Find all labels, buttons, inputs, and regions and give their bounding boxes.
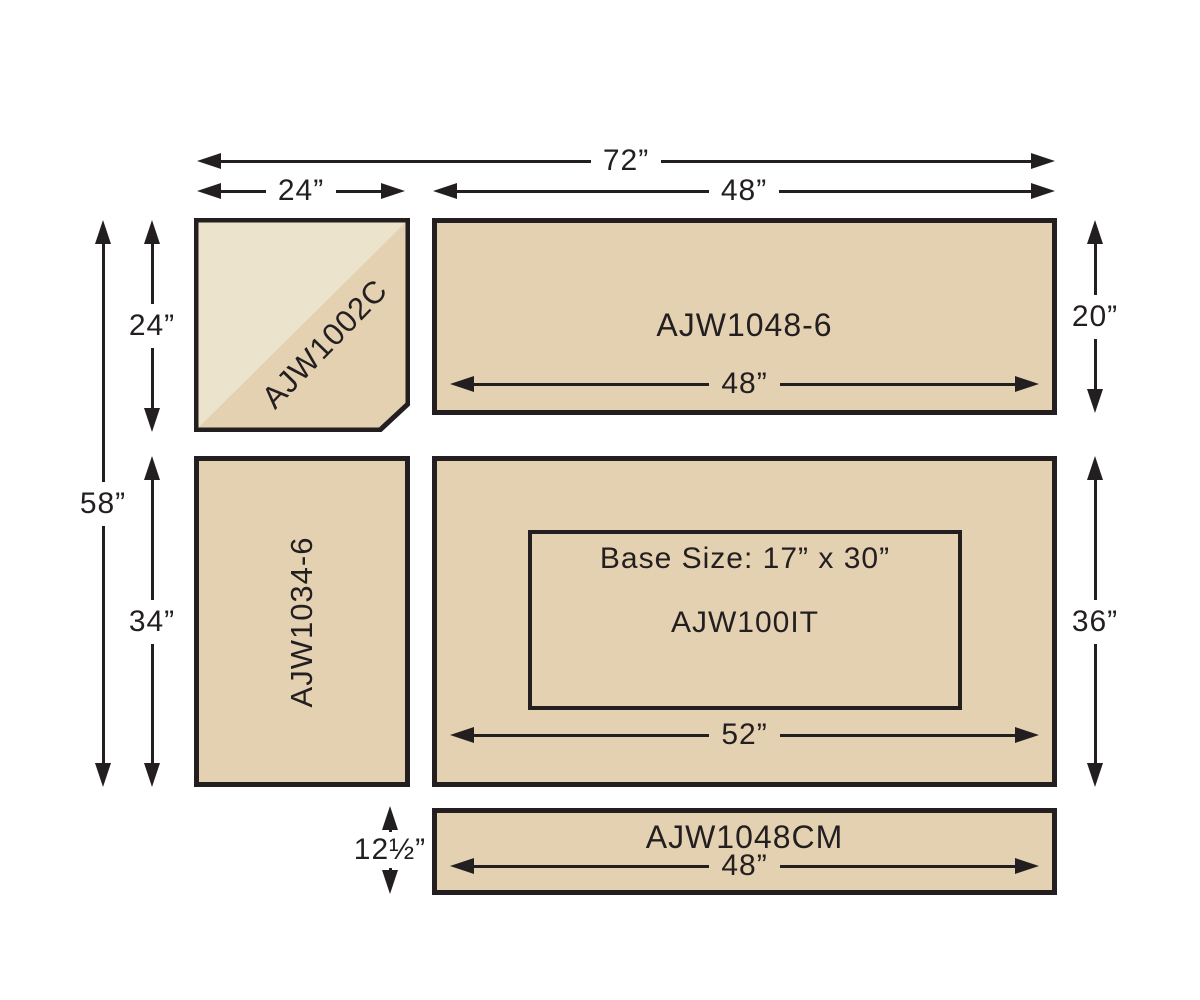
arrowhead-down-icon bbox=[382, 870, 398, 894]
arrowhead-right-icon bbox=[1015, 376, 1039, 392]
dim-left-piece-height: 34” bbox=[107, 456, 197, 787]
dim-overall-width-label: 72” bbox=[591, 145, 661, 177]
dim-line bbox=[1094, 644, 1097, 764]
dim-ajw1048-6-width: 48” bbox=[450, 368, 1039, 400]
dim-line bbox=[474, 865, 709, 868]
dim-ajw1048-6-width-label: 48” bbox=[709, 368, 779, 400]
arrowhead-left-icon bbox=[433, 183, 457, 199]
piece-ajw100it-base-outline: Base Size: 17” x 30” AJW100IT bbox=[528, 530, 962, 710]
arrowhead-left-icon bbox=[197, 183, 221, 199]
dim-right-width: 48” bbox=[433, 175, 1055, 207]
arrowhead-left-icon bbox=[450, 376, 474, 392]
piece-ajw1048cm: AJW1048CM 48” bbox=[432, 808, 1057, 895]
dim-line bbox=[102, 526, 105, 764]
arrowhead-left-icon bbox=[450, 858, 474, 874]
piece-ajw1034-6-label: AJW1034-6 bbox=[284, 536, 320, 707]
dim-line bbox=[221, 190, 266, 193]
dim-mat-height-label: 12½” bbox=[354, 832, 426, 868]
dim-line bbox=[102, 244, 105, 482]
dim-line bbox=[780, 383, 1015, 386]
dim-mat-height: 12½” bbox=[345, 806, 435, 898]
piece-ajw100it: Base Size: 17” x 30” AJW100IT 52” bbox=[432, 456, 1057, 787]
piece-ajw1034-6: AJW1034-6 bbox=[194, 456, 410, 787]
dim-line bbox=[780, 865, 1015, 868]
dim-ajw100it-width-label: 52” bbox=[709, 719, 779, 751]
arrowhead-down-icon bbox=[1087, 763, 1103, 787]
dim-overall-width: 72” bbox=[197, 145, 1055, 177]
dim-line bbox=[1094, 244, 1097, 295]
arrowhead-right-icon bbox=[1031, 153, 1055, 169]
dim-corner-width-label: 24” bbox=[266, 175, 336, 207]
arrowhead-left-icon bbox=[197, 153, 221, 169]
arrowhead-right-icon bbox=[1015, 858, 1039, 874]
dim-ajw100it-width: 52” bbox=[450, 719, 1039, 751]
piece-ajw100it-base-size-label: Base Size: 17” x 30” bbox=[532, 542, 958, 576]
arrowhead-down-icon bbox=[1087, 389, 1103, 413]
dim-ajw1048cm-width: 48” bbox=[450, 850, 1039, 882]
piece-ajw100it-label: AJW100IT bbox=[532, 606, 958, 640]
dim-line bbox=[1094, 339, 1097, 390]
dim-line bbox=[336, 190, 381, 193]
dim-line bbox=[1094, 480, 1097, 600]
arrowhead-down-icon bbox=[144, 763, 160, 787]
dim-line bbox=[151, 348, 154, 408]
dim-line bbox=[457, 190, 709, 193]
dim-line bbox=[780, 734, 1015, 737]
dim-island-height: 36” bbox=[1050, 456, 1140, 787]
dim-line bbox=[474, 383, 709, 386]
arrowhead-right-icon bbox=[381, 183, 405, 199]
arrowhead-left-icon bbox=[450, 727, 474, 743]
dim-line bbox=[151, 244, 154, 304]
piece-ajw1048-6-label: AJW1048-6 bbox=[437, 307, 1052, 344]
arrowhead-up-icon bbox=[1087, 220, 1103, 244]
dim-island-height-label: 36” bbox=[1072, 600, 1118, 644]
dim-line bbox=[151, 480, 154, 600]
arrowhead-up-icon bbox=[1087, 456, 1103, 480]
dim-top-right-height-label: 20” bbox=[1072, 295, 1118, 339]
dim-top-right-height: 20” bbox=[1050, 220, 1140, 413]
arrowhead-right-icon bbox=[1015, 727, 1039, 743]
piece-ajw1002c: AJW1002C bbox=[194, 218, 410, 432]
dim-line bbox=[221, 160, 591, 163]
dim-line bbox=[661, 160, 1031, 163]
dim-left-piece-height-label: 34” bbox=[129, 600, 175, 644]
dim-corner-height: 24” bbox=[107, 220, 197, 432]
arrowhead-up-icon bbox=[382, 806, 398, 830]
dim-corner-width: 24” bbox=[197, 175, 405, 207]
arrowhead-down-icon bbox=[144, 408, 160, 432]
arrowhead-up-icon bbox=[144, 220, 160, 244]
piece-ajw1048-6: AJW1048-6 48” bbox=[432, 218, 1057, 415]
dim-line bbox=[151, 644, 154, 764]
dim-line bbox=[779, 190, 1031, 193]
dim-line bbox=[474, 734, 709, 737]
arrowhead-up-icon bbox=[144, 456, 160, 480]
dim-right-width-label: 48” bbox=[709, 175, 779, 207]
arrowhead-right-icon bbox=[1031, 183, 1055, 199]
dim-ajw1048cm-width-label: 48” bbox=[709, 850, 779, 882]
dim-corner-height-label: 24” bbox=[129, 304, 175, 348]
corner-piece-shape bbox=[194, 218, 410, 432]
countertop-layout-diagram: 72” 24” 48” 58” 24” 34” bbox=[0, 0, 1200, 1000]
